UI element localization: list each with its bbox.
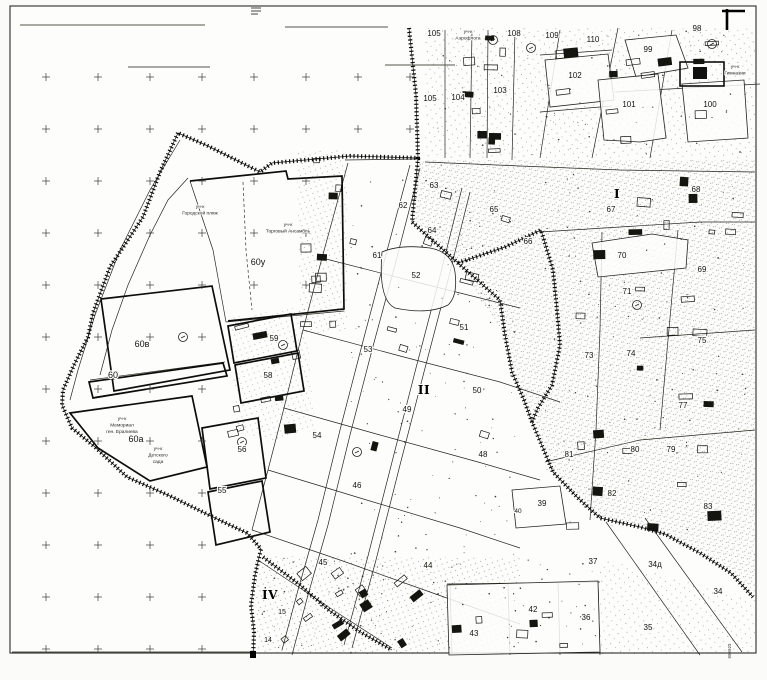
land-use-annotation: Гимназии — [724, 71, 745, 77]
parcel-number-label: 53 — [364, 345, 373, 354]
parcel-number-label: 103 — [493, 86, 507, 95]
parcel-number-label: 105 — [423, 94, 437, 103]
parcel-number-label: 75 — [698, 336, 707, 345]
edge-stamp-number: 000023 — [729, 643, 733, 659]
block-number-label: 60 — [108, 370, 118, 380]
land-use-annotation: уч-к — [731, 65, 740, 70]
parcel-number-label: 46 — [353, 481, 362, 490]
parcel-number-label: 56 — [238, 445, 247, 454]
land-use-annotation: Мемориал — [110, 423, 134, 429]
parcel-number-label: 105 — [427, 29, 441, 38]
parcel-number-label: 44 — [424, 561, 433, 570]
parcel-number-label: 59 — [270, 334, 279, 343]
land-use-annotation: уч-к — [284, 223, 293, 228]
land-use-annotation: сада — [153, 460, 164, 465]
parcel-number-label: 81 — [565, 450, 574, 459]
parcel-number-label: 48 — [479, 450, 488, 459]
parcel-number-label: 50 — [473, 386, 482, 395]
land-use-annotation: Городской пляж — [182, 210, 218, 217]
land-use-annotation: уч-к — [196, 205, 205, 210]
district-roman-numeral: IV — [262, 588, 278, 602]
parcel-number-label: 39 — [538, 499, 547, 508]
parcel-number-label: 35 — [644, 623, 653, 632]
block-number-label: 60у — [251, 257, 266, 267]
parcel-number-label: 67 — [607, 205, 616, 214]
parcel-number-label: 108 — [507, 29, 521, 38]
district-roman-numeral: I — [614, 187, 620, 201]
parcel-number-label: 98 — [693, 24, 702, 33]
parcel-number-label: 62 — [399, 201, 408, 210]
land-use-annotation: Торговый Ансамбль — [266, 228, 311, 235]
scanned-cadastral-map-page: 1051081091109899102101100104103105636265… — [0, 0, 767, 680]
parcel-number-label: 58 — [264, 371, 273, 380]
parcel-number-label: 54 — [313, 431, 322, 440]
parcel-number-label: 14 — [264, 637, 272, 644]
parcel-number-label: 102 — [568, 71, 582, 80]
parcel-number-label: 65 — [490, 205, 499, 214]
parcel-number-label: 69 — [698, 265, 707, 274]
parcel-number-label: 52 — [412, 271, 421, 280]
parcel-number-label: 83 — [704, 502, 713, 511]
parcel-number-label: 110 — [587, 35, 600, 44]
parcel-number-label: 63 — [430, 181, 439, 190]
parcel-number-label: 66 — [524, 237, 533, 246]
parcel-number-label: 15 — [278, 609, 286, 616]
parcel-number-label: 79 — [667, 445, 676, 454]
block-number-label: 60а — [128, 434, 143, 444]
parcel-number-label: 40 — [514, 508, 522, 515]
parcel-number-label: 68 — [692, 185, 701, 194]
parcel-number-label: 51 — [460, 323, 469, 332]
district-roman-numeral: II — [418, 383, 430, 397]
parcel-number-label: 70 — [618, 251, 627, 260]
parcel-number-label: 55 — [218, 486, 227, 495]
parcel-number-label: 49 — [403, 405, 412, 414]
parcel-number-label: 82 — [608, 489, 617, 498]
parcel-number-label: 99 — [644, 45, 653, 54]
parcel-number-label: 109 — [545, 31, 559, 40]
cadastral-map-canvas: 1051081091109899102101100104103105636265… — [0, 0, 767, 680]
land-use-annotation: ген. Ералиева — [106, 429, 138, 435]
parcel-number-label: 100 — [703, 100, 717, 109]
parcel-number-label: 71 — [623, 287, 632, 296]
land-use-annotation: Аэрофлота — [455, 36, 480, 42]
parcel-number-label: 64 — [428, 226, 437, 235]
parcel-number-label: 34д — [648, 560, 662, 569]
land-use-annotation: уч-к — [118, 417, 127, 422]
parcel-number-label: 77 — [679, 401, 688, 410]
parcel-number-label: 104 — [451, 93, 465, 102]
land-use-annotation: Детского — [148, 453, 168, 459]
land-use-annotation: уч-к — [154, 447, 163, 452]
parcel-number-label: 74 — [627, 349, 636, 358]
parcel-number-label: 34 — [714, 587, 723, 596]
parcel-number-label: 45 — [319, 558, 328, 567]
parcel-number-label: 36 — [582, 613, 591, 622]
land-use-annotation: уч-к — [464, 30, 473, 35]
sheet-corner-mark-bottom-left — [250, 651, 256, 658]
parcel-number-label: 73 — [585, 351, 594, 360]
parcel-number-label: 37 — [589, 557, 598, 566]
parcel-number-label: 43 — [470, 629, 479, 638]
block-number-label: 60в — [135, 339, 150, 349]
parcel-number-label: 101 — [622, 100, 636, 109]
parcel-number-label: 80 — [631, 445, 640, 454]
parcel-number-label: 42 — [529, 605, 538, 614]
parcel-number-label: 61 — [373, 251, 382, 260]
